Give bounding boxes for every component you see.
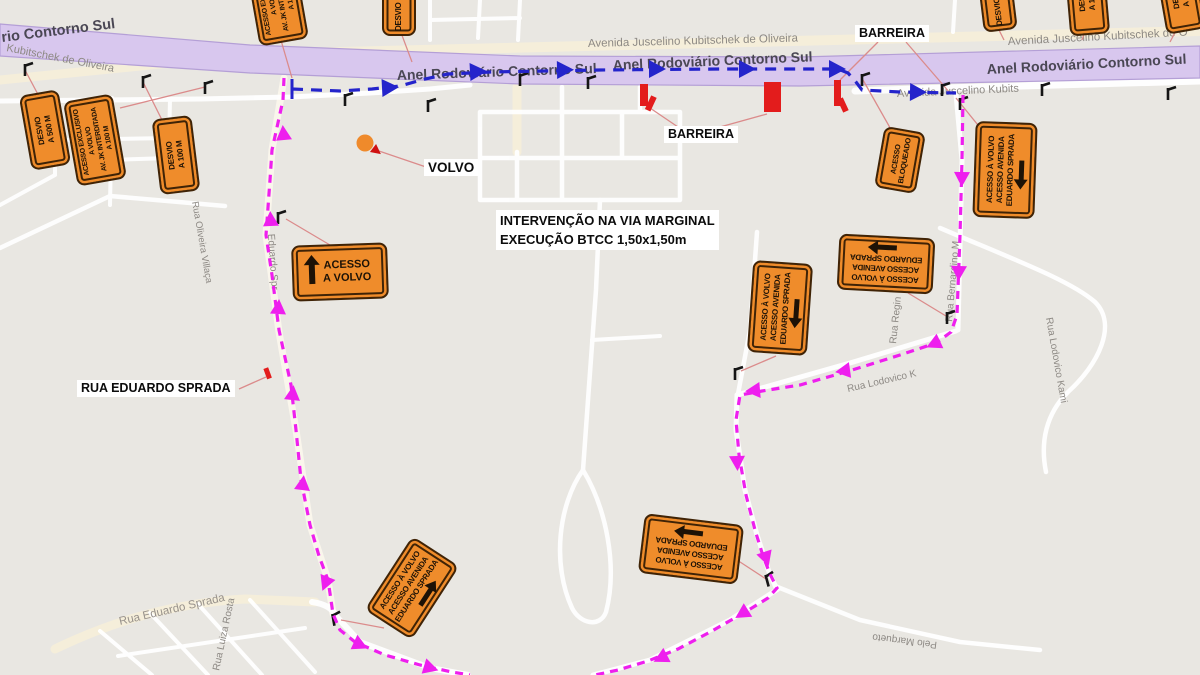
- map-drawing: Avenida Juscelino Kubitschek de Oliveira…: [0, 0, 1200, 675]
- traffic-sign-acesso-a-volvo: ACESSO A VOLVO: [291, 242, 389, 301]
- sign-text: DESVIO: [1076, 0, 1088, 12]
- traffic-sign-acesso-avenida: ACESSO À VOLVO ACESSO AVENIDA EDUARDO SP…: [747, 260, 813, 356]
- right-arrow-icon: [683, 529, 703, 536]
- volvo-marker: [357, 135, 384, 159]
- street-label: Rua Eduardo Sprada: [118, 592, 227, 628]
- sign-text: EDUARDO SPRADA: [1005, 134, 1018, 207]
- up-arrow-icon: [309, 264, 316, 284]
- sign-text: DESVIO: [394, 3, 404, 31]
- leader-lines: [25, 26, 1178, 628]
- barreira-label-top: BARREIRA: [855, 25, 929, 42]
- volvo-label: VOLVO: [424, 159, 478, 176]
- magenta-route-arrows: [262, 124, 970, 675]
- detour-route-magenta: [262, 78, 970, 675]
- traffic-sign-desvio-arrow-partial: DESVIO: [382, 0, 416, 36]
- sign-text: DESVIO: [1168, 0, 1183, 10]
- intervention-line1: INTERVENÇÃO NA VIA MARGINAL: [500, 211, 715, 230]
- volvo-dot: [357, 135, 374, 152]
- barreira-label-mid: BARREIRA: [664, 126, 738, 143]
- street-label: Rua Lodovico Kami: [1043, 317, 1069, 404]
- roads-layer: [0, 0, 1200, 675]
- traffic-sign-acesso-avenida: ACESSO À VOLVO ACESSO AVENIDA EDUARDO SP…: [972, 121, 1037, 219]
- map-canvas: Avenida Juscelino Kubitschek de Oliveira…: [0, 0, 1200, 675]
- barrier: [764, 82, 781, 112]
- sign-text: A 100 M: [174, 140, 187, 169]
- street-label: Rua Luiza Rosta: [211, 597, 237, 672]
- traffic-sign-desvio-100-partial: DESVIO A 100 M: [1064, 0, 1110, 37]
- sign-text: A VOLVO: [323, 271, 372, 286]
- street-label: Rua Oliveira Villaça: [189, 201, 214, 285]
- sign-text: A 100 M: [1086, 0, 1098, 11]
- intervention-line2: EXECUÇÃO BTCC 1,50x1,50m: [500, 230, 715, 249]
- right-arrow-icon: [877, 245, 897, 251]
- left-arrow-icon: [1019, 160, 1025, 180]
- rua-eduardo-sprada-label: RUA EDUARDO SPRADA: [77, 380, 235, 397]
- street-label: Eduardo Spr: [265, 233, 280, 290]
- street-label: Rua Regin: [888, 296, 904, 344]
- street-label: Rua Lodovico K: [846, 368, 918, 395]
- sign-text: DESVIO: [992, 0, 1005, 26]
- traffic-sign-acesso-avenida: ACESSO À VOLVO ACESSO AVENIDA EDUARDO SP…: [638, 513, 745, 585]
- traffic-sign-acesso-avenida: ACESSO À VOLVO ACESSO AVENIDA EDUARDO SP…: [837, 234, 936, 295]
- left-arrow-icon: [793, 299, 799, 319]
- intervention-note: INTERVENÇÃO NA VIA MARGINAL EXECUÇÃO BTC…: [496, 210, 719, 250]
- barrier: [640, 84, 648, 106]
